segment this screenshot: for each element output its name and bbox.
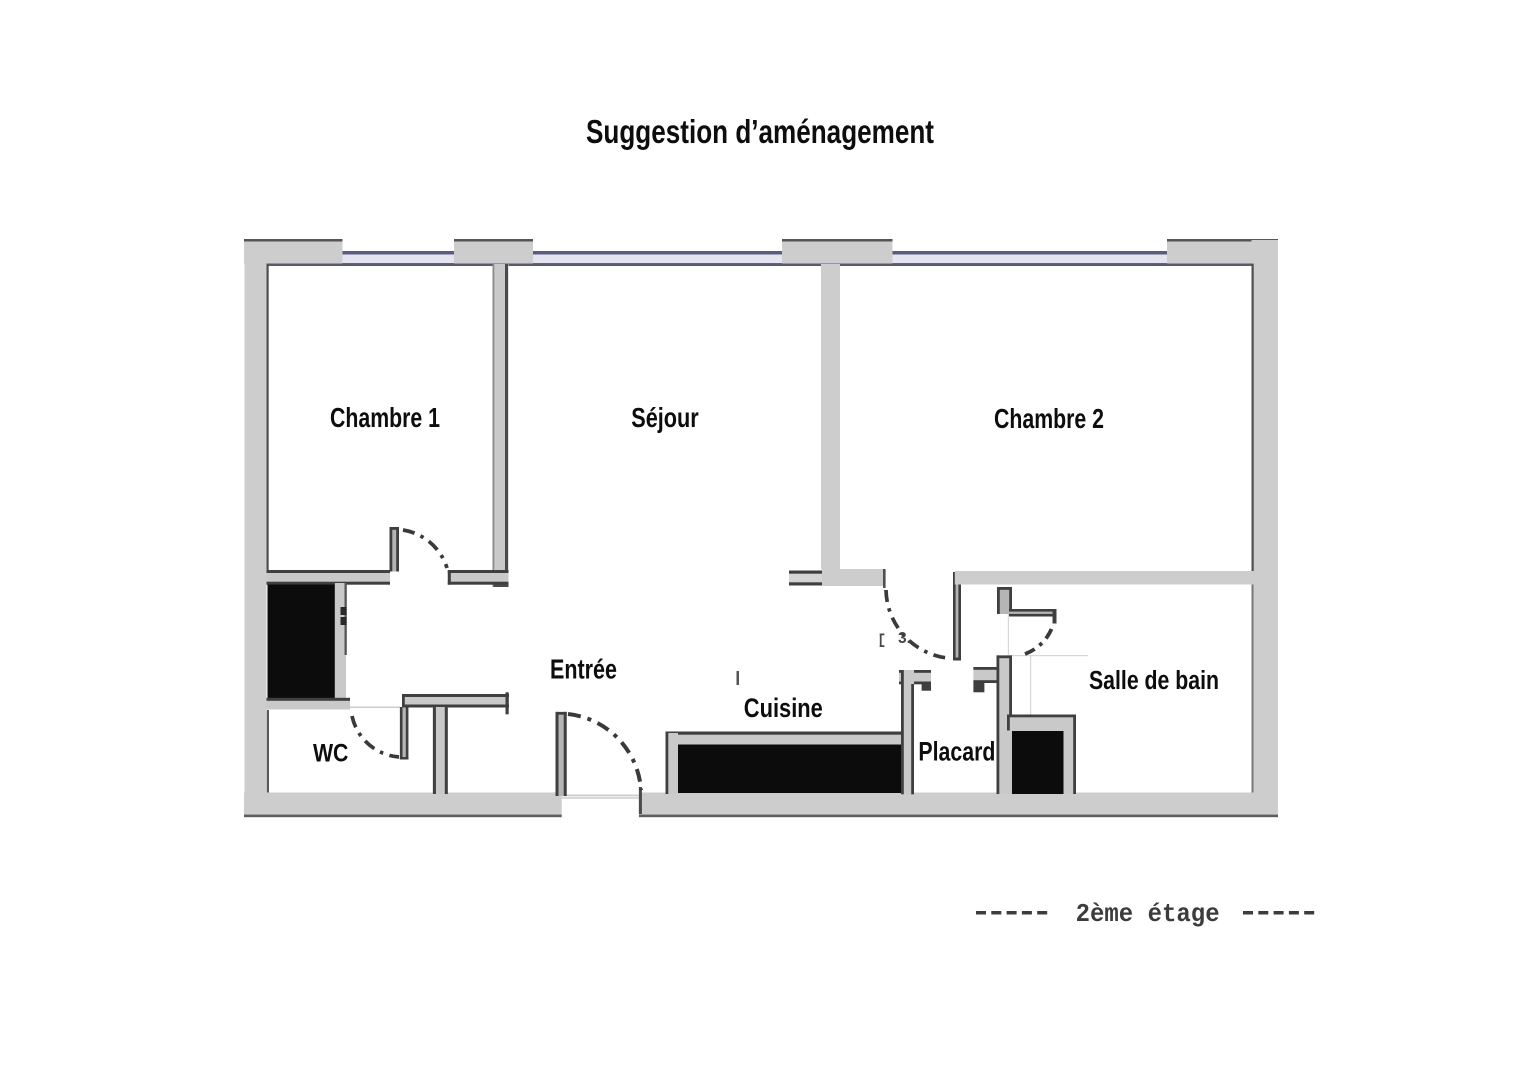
svg-text:3.: 3. xyxy=(898,630,911,647)
svg-text:Chambre 2: Chambre 2 xyxy=(994,403,1104,434)
svg-text:Salle de bain: Salle de bain xyxy=(1089,667,1219,695)
svg-text:WC: WC xyxy=(313,740,349,768)
svg-text:2ème étage: 2ème étage xyxy=(1076,899,1220,929)
svg-text:Placard: Placard xyxy=(918,737,995,767)
svg-text:Chambre 1: Chambre 1 xyxy=(330,402,440,433)
svg-text:Entrée: Entrée xyxy=(550,654,617,685)
svg-text:Cuisine: Cuisine xyxy=(744,693,823,723)
svg-text:Suggestion d’aménagement: Suggestion d’aménagement xyxy=(586,113,934,150)
svg-text:Séjour: Séjour xyxy=(631,402,699,433)
